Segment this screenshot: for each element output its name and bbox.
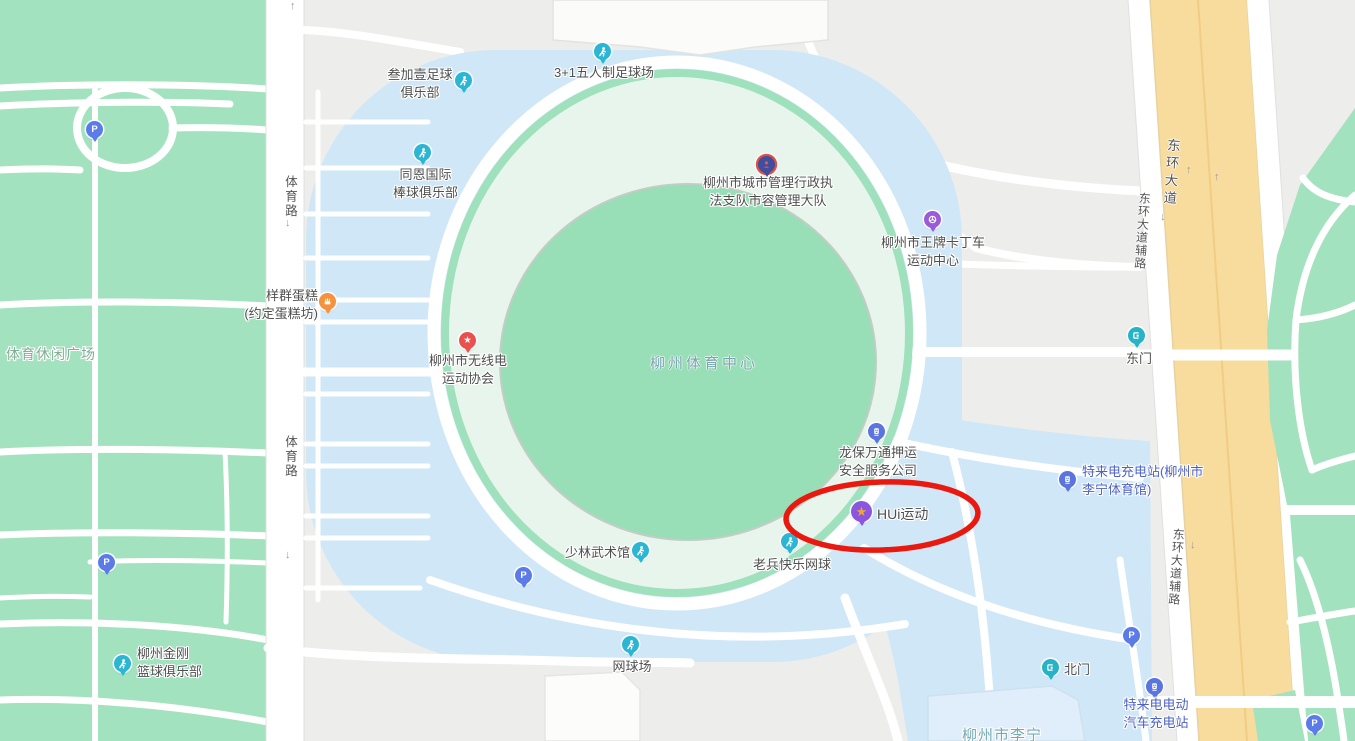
poi-label-tongen[interactable]: 同恩国际棒球俱乐部 [378,166,473,201]
sports-pin-icon[interactable] [114,655,131,672]
poi-label-kading[interactable]: 柳州市王牌卡丁车运动中心 [873,234,993,269]
road-arrow-up: ↑ [1214,172,1220,183]
map-canvas[interactable]: ★ ★ P P P P P 叁加壹足球俱乐部 3+1五人制足球场 同恩国际棒球俱… [0,0,1355,741]
road-arrow-down: ↓ [1160,212,1166,223]
parking-pin-icon[interactable]: P [98,554,115,571]
poi-label-jingang[interactable]: 柳州金刚篮球俱乐部 [137,645,202,680]
area-label-sports-center: 柳州体育中心 [650,354,758,374]
road-arrow-up: ↑ [290,1,296,12]
east-gate-pin-icon[interactable] [1128,327,1145,344]
poi-label-east-gate[interactable]: 东门 [1126,350,1152,368]
karting-pin-icon[interactable] [924,211,941,228]
poi-label-wangqiuchang[interactable]: 网球场 [608,658,656,676]
road-arrow-up: ↑ [1186,165,1192,176]
sports-pin-icon[interactable] [622,636,639,653]
stadium [434,62,920,604]
poi-label-shaolin[interactable]: 少林武术馆 [540,544,630,562]
star-pin-icon[interactable]: ★ [459,332,476,349]
sports-pin-icon[interactable] [594,43,611,60]
parking-pin-icon[interactable]: P [86,121,103,138]
poi-label-hui-sports[interactable]: HUi运动 [877,505,928,524]
poi-label-chengguan[interactable]: 柳州市城市管理行政执法支队市容管理大队 [702,174,834,209]
government-pin-icon[interactable] [758,156,775,173]
poi-label-sanjiayi[interactable]: 叁加壹足球俱乐部 [375,66,465,101]
sports-pin-icon[interactable] [781,533,798,550]
poi-label-wurenzhi[interactable]: 3+1五人制足球场 [544,64,664,82]
poi-label-longbao[interactable]: 龙保万通押运安全服务公司 [833,444,923,479]
sports-pin-icon[interactable] [632,542,649,559]
charging-station-pin-icon[interactable] [1059,471,1076,488]
parking-pin-icon[interactable]: P [1306,715,1323,732]
security-company-pin-icon[interactable] [868,423,885,440]
road-label-tiyu-road-north: 体育路 [281,175,300,219]
poi-label-charging-east[interactable]: 特来电充电站(柳州市李宁体育馆) [1082,463,1203,498]
west-park-area [0,0,268,741]
poi-label-charging-south[interactable]: 特来电电动汽车充电站 [1122,696,1190,731]
road-arrow-down: ↓ [1190,540,1196,551]
parking-pin-icon[interactable]: P [1123,627,1140,644]
poi-label-wuxiandian[interactable]: 柳州市无线电运动协会 [418,352,518,387]
road-arrow-down: ↓ [285,218,291,229]
parking-pin-icon[interactable]: P [515,567,532,584]
poi-label-laobing[interactable]: 老兵快乐网球 [750,556,834,574]
hui-sports-pin-icon[interactable]: ★ [851,501,872,522]
cake-shop-pin-icon[interactable] [319,293,336,310]
poi-label-yangqun[interactable]: 样群蛋糕(约定蛋糕坊) [228,287,318,322]
poi-label-north-gate[interactable]: 北门 [1064,661,1090,679]
road-arrow-down: ↓ [285,550,291,561]
road-label-tiyu-road-south: 体育路 [281,435,300,479]
charging-station-pin-icon[interactable] [1146,678,1163,695]
north-gate-pin-icon[interactable] [1042,659,1059,676]
sports-pin-icon[interactable] [414,144,431,161]
area-label-leisure-square: 体育休闲广场 [6,345,96,364]
poi-label-lining-stadium[interactable]: 柳州市李宁 [962,726,1042,741]
